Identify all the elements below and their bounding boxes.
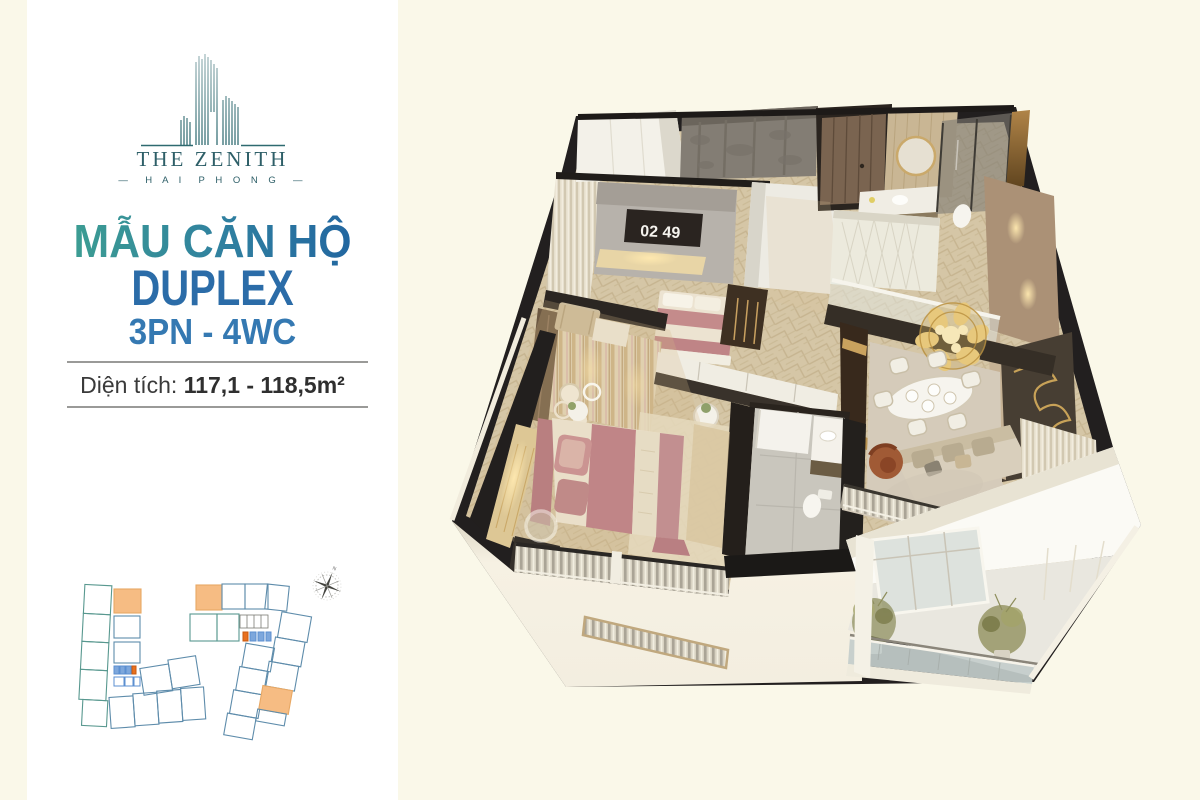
svg-text:02 49: 02 49 (640, 223, 681, 242)
svg-text:N: N (331, 566, 337, 573)
